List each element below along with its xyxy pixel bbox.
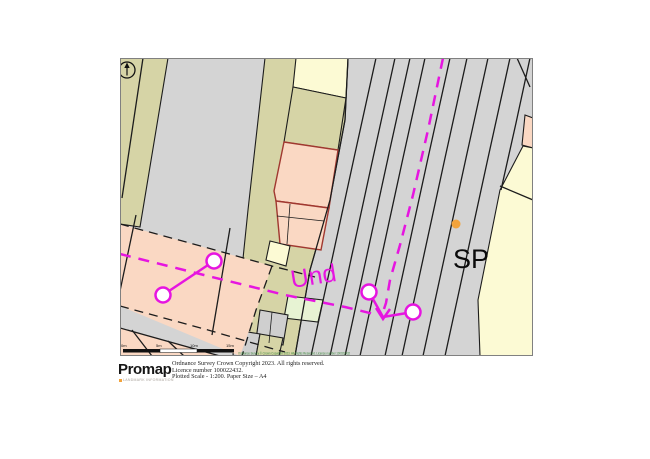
scale-label: 10m	[190, 343, 198, 348]
scale-label: 0m	[121, 343, 127, 348]
landmark-logo-icon	[119, 379, 122, 382]
map-plot[interactable]: Und SP 0m 5m 10m 15m Ordnance Survey © C…	[120, 58, 533, 356]
orange-point-icon	[452, 220, 461, 229]
sp-label: SP	[453, 244, 489, 274]
survey-node-icon	[207, 254, 222, 269]
plot-footer: Promap LANDMARK INFORMATION Ordnance Sur…	[0, 358, 650, 398]
promap-tagline-text: LANDMARK INFORMATION	[123, 378, 174, 382]
scale-label: 15m	[226, 343, 234, 348]
survey-node-icon	[362, 285, 377, 300]
promap-logo: Promap	[118, 361, 171, 378]
map-canvas[interactable]: Und SP 0m 5m 10m 15m Ordnance Survey © C…	[120, 58, 533, 356]
scale-label: 5m	[156, 343, 162, 348]
survey-node-icon	[156, 288, 171, 303]
promap-tagline: LANDMARK INFORMATION	[119, 378, 174, 382]
map-copyright-text: Ordnance Survey © Crown Copyright 2023. …	[238, 352, 350, 356]
footer-copyright-line: Plotted Scale - 1:200. Paper Size – A4	[172, 374, 324, 381]
footer-copyright: Ordnance Survey Crown Copyright 2023. Al…	[172, 361, 324, 381]
survey-node-icon	[406, 305, 421, 320]
